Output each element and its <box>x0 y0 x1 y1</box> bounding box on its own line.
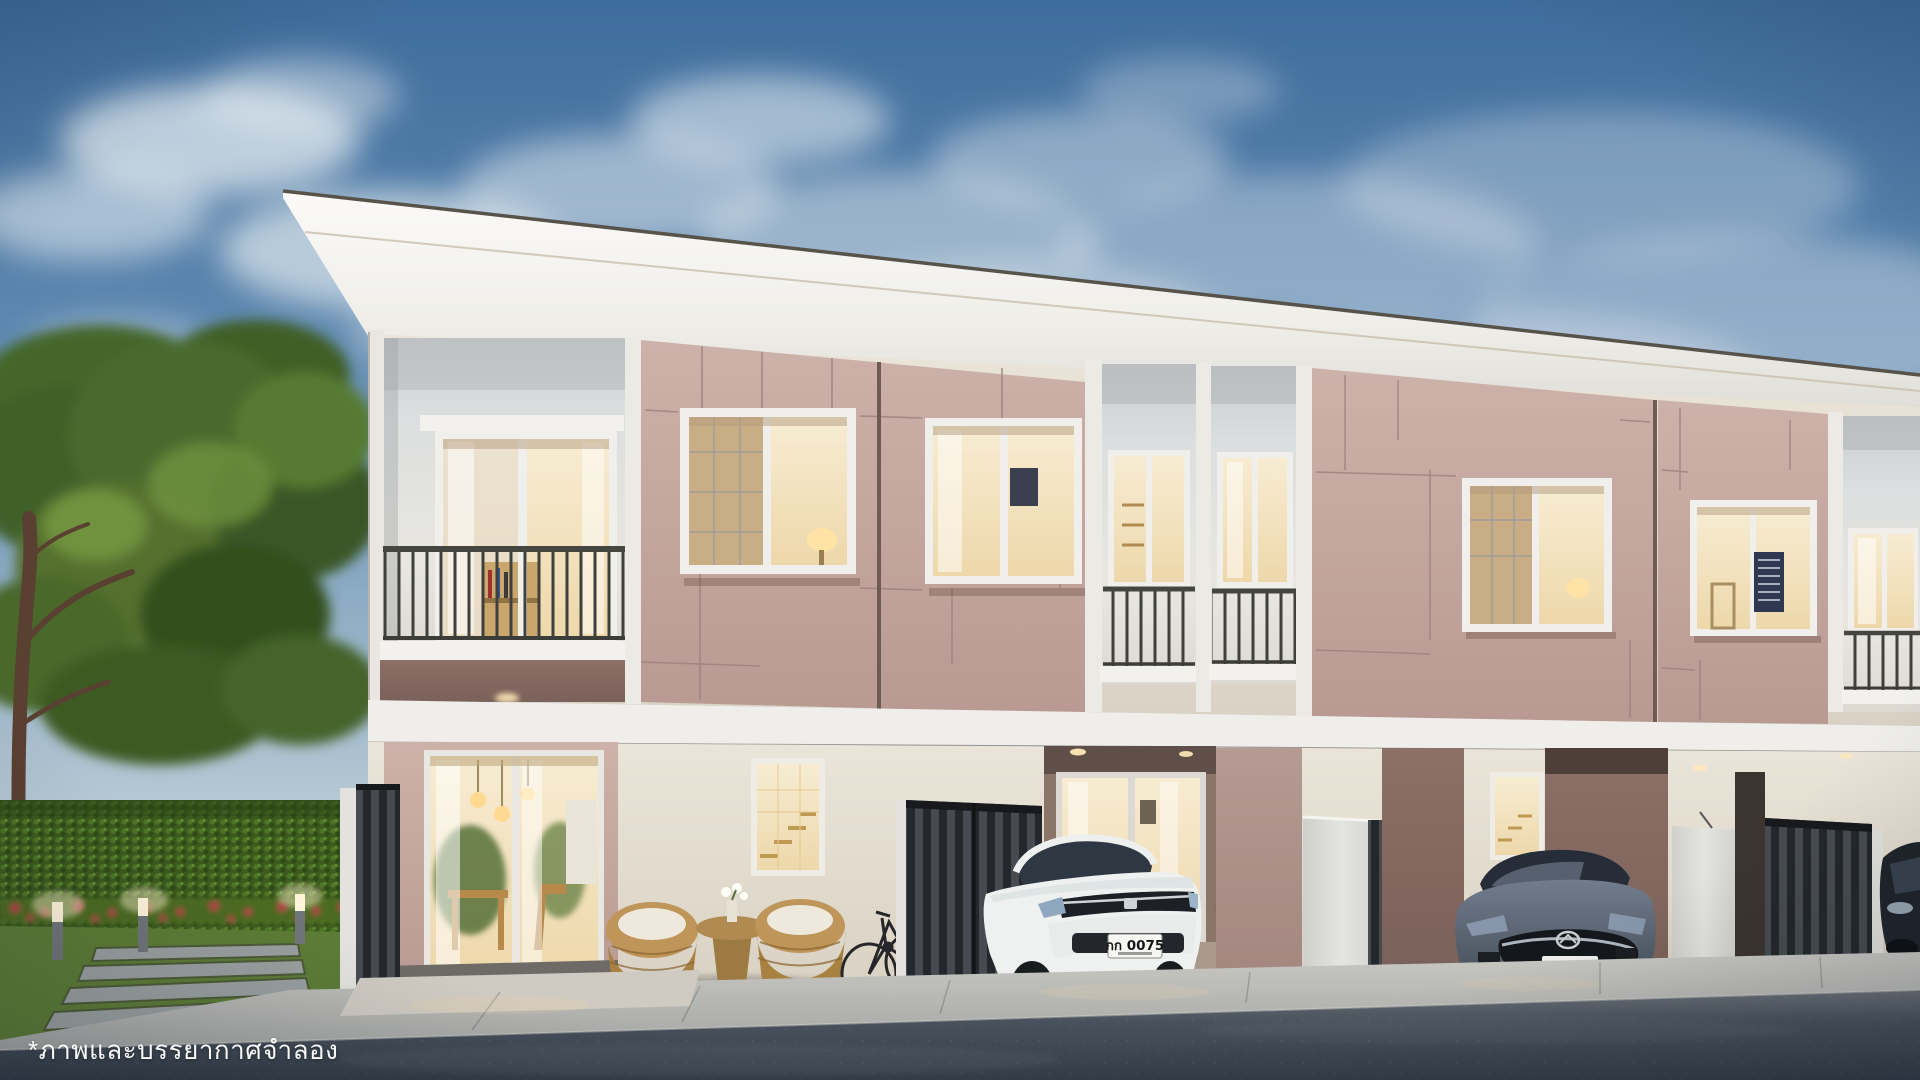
rendered-photo: กก 0075 <box>0 0 1920 1080</box>
vignette <box>0 0 1920 1080</box>
disclaimer-text: *ภาพและบรรยากาศจำลอง <box>28 1030 338 1071</box>
scene-canvas: กก 0075 <box>0 0 1920 1080</box>
